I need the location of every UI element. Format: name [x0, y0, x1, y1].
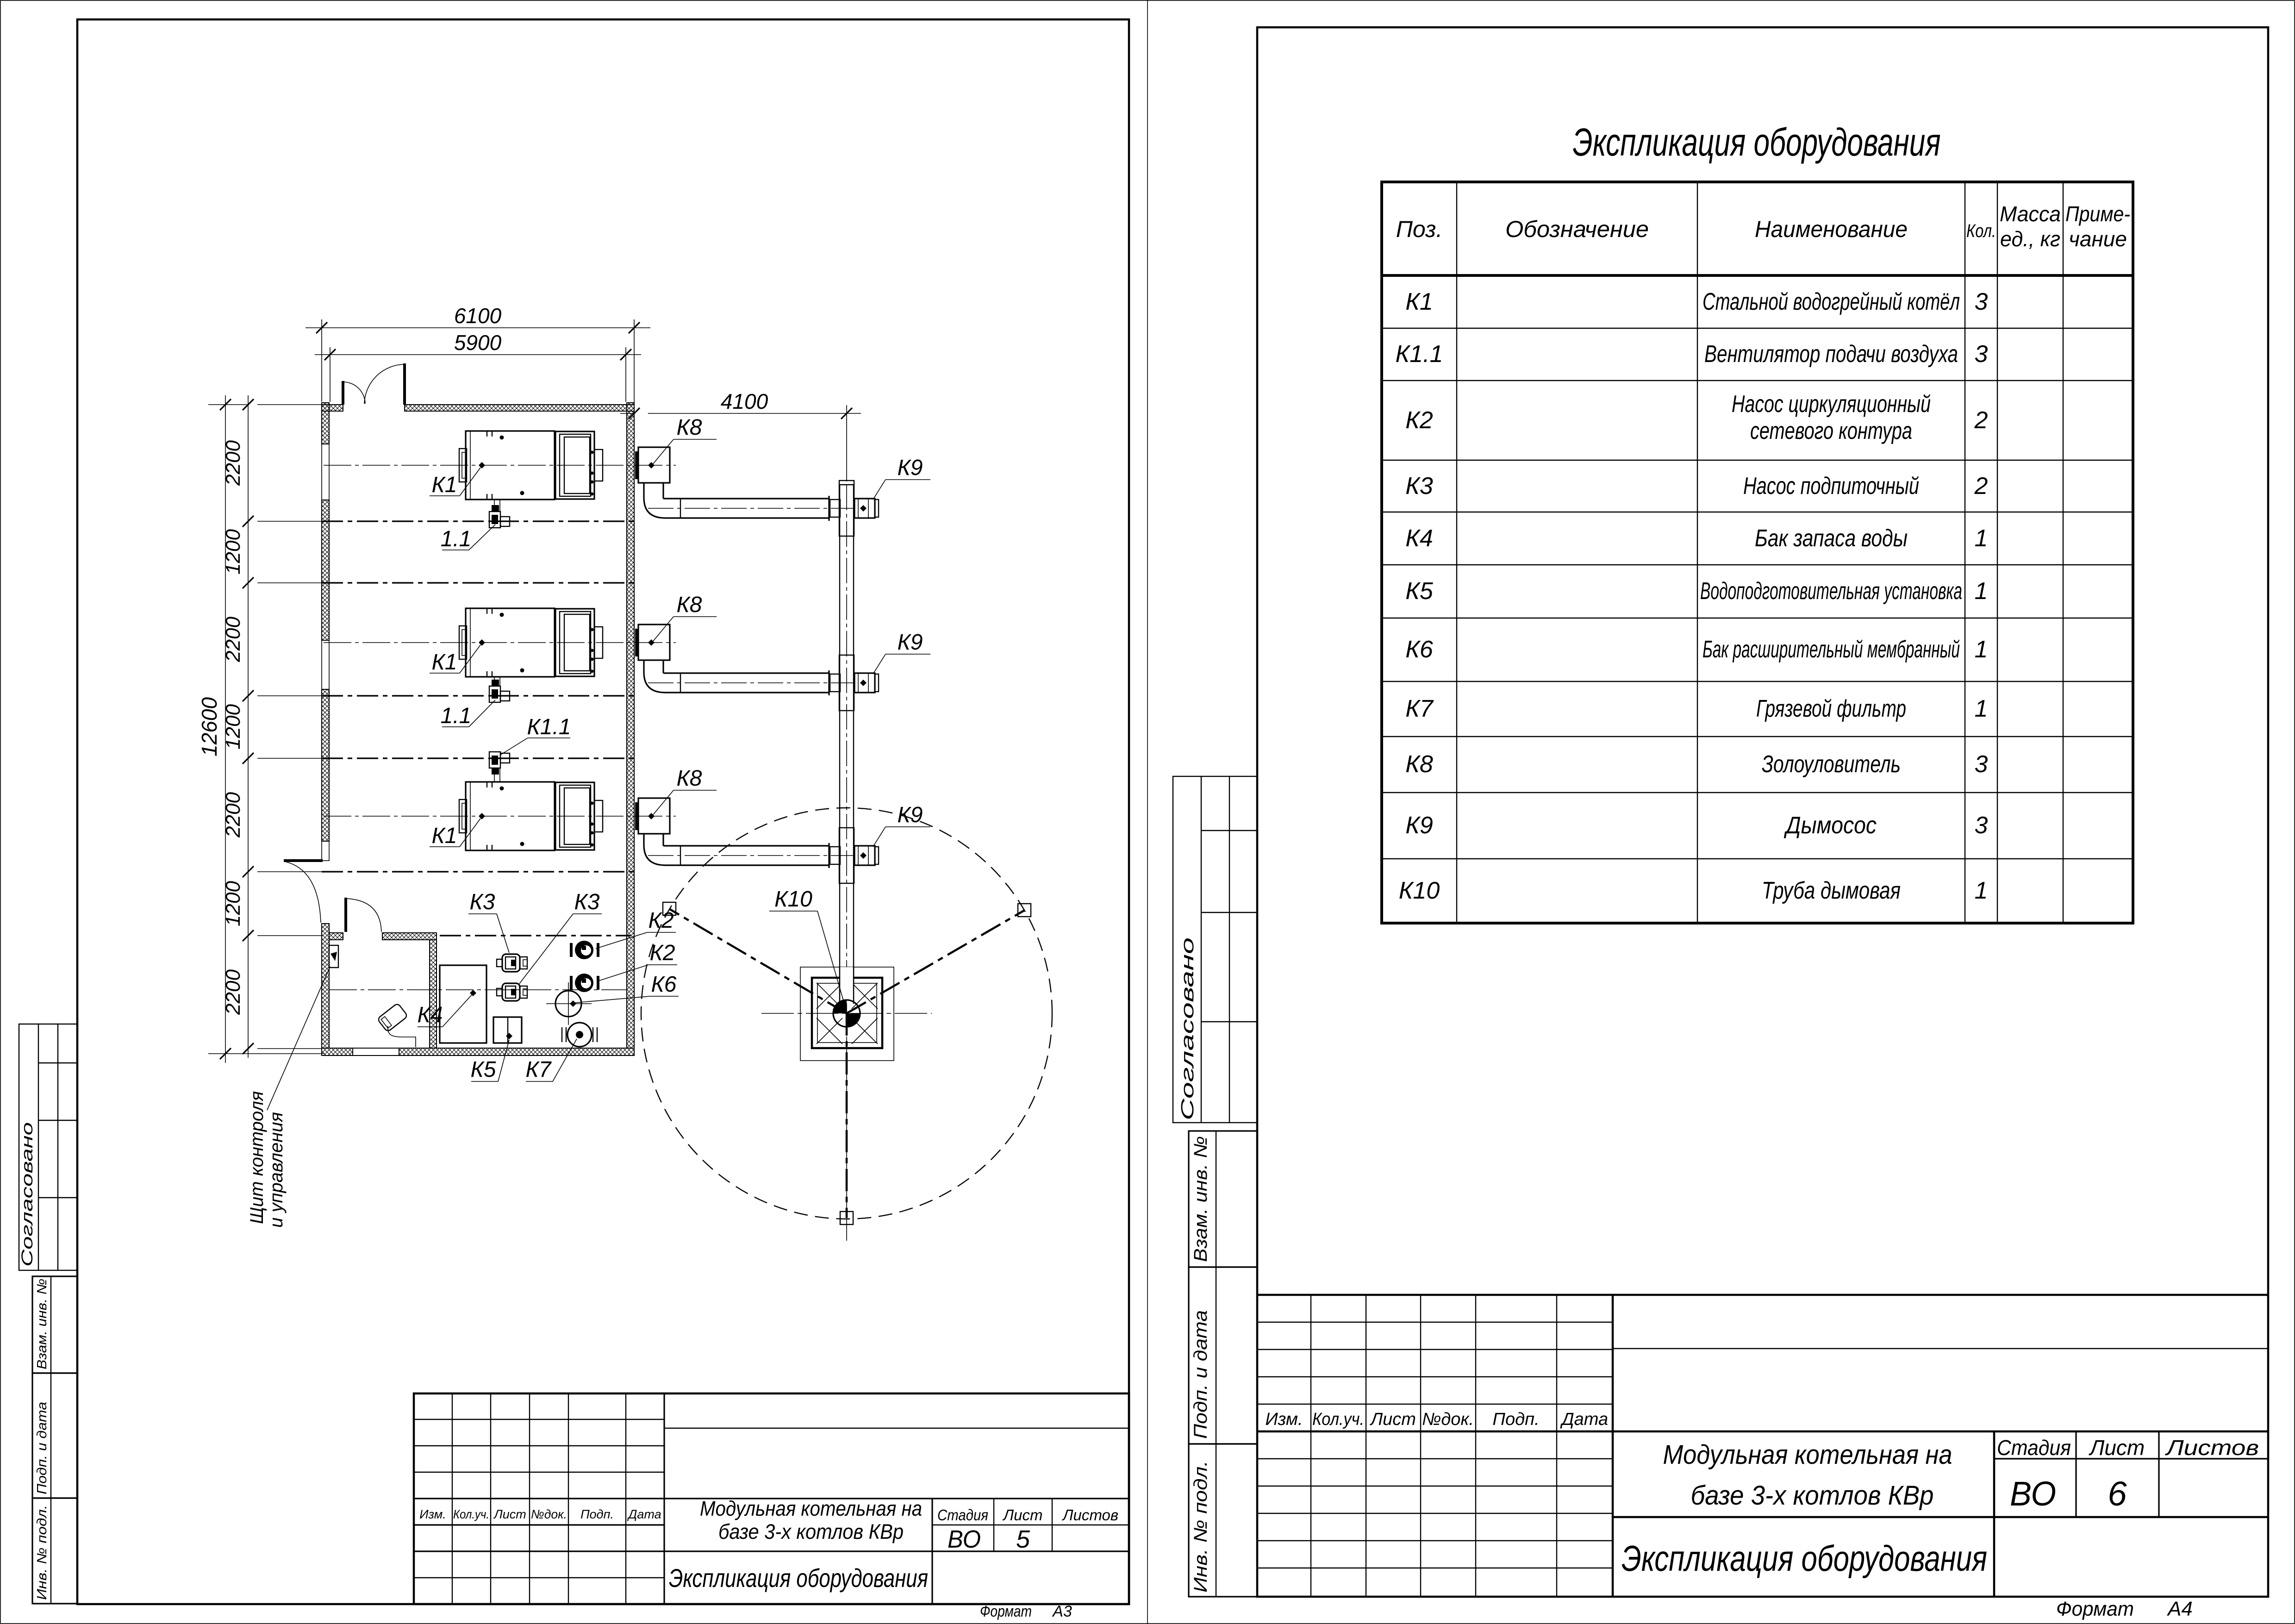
svg-text:Лист: Лист: [1369, 1410, 1416, 1429]
svg-text:3: 3: [1975, 288, 1988, 315]
svg-text:базе 3-х котлов КВр: базе 3-х котлов КВр: [718, 1520, 904, 1543]
svg-text:Взам. инв. №: Взам. инв. №: [1191, 1136, 1211, 1262]
svg-text:К2: К2: [650, 941, 675, 965]
svg-text:Наименование: Наименование: [1755, 216, 1908, 242]
svg-text:К8: К8: [677, 593, 702, 617]
svg-text:1.1: 1.1: [441, 527, 472, 551]
svg-text:чание: чание: [2069, 227, 2127, 251]
svg-text:К1: К1: [432, 650, 457, 675]
svg-text:К8: К8: [1405, 751, 1433, 778]
svg-text:№док.: №док.: [531, 1507, 567, 1521]
svg-text:К10: К10: [1399, 877, 1440, 904]
svg-text:Грязевой фильтр: Грязевой фильтр: [1756, 695, 1906, 722]
svg-text:К3: К3: [574, 890, 600, 914]
svg-text:5: 5: [1016, 1525, 1030, 1553]
svg-text:3: 3: [1975, 341, 1988, 368]
svg-text:К3: К3: [470, 890, 495, 914]
svg-text:Дата: Дата: [627, 1507, 661, 1521]
svg-text:Дата: Дата: [1560, 1410, 1608, 1429]
svg-text:К9: К9: [1405, 812, 1433, 839]
svg-text:Листов: Листов: [2164, 1436, 2259, 1460]
svg-text:К4: К4: [418, 1003, 443, 1027]
svg-text:Стадия: Стадия: [1997, 1436, 2071, 1460]
svg-text:К8: К8: [677, 415, 702, 440]
svg-text:К1.1: К1.1: [527, 715, 571, 739]
svg-text:3: 3: [1975, 751, 1988, 778]
svg-text:Бак расширительный мембранный: Бак расширительный мембранный: [1703, 636, 1960, 663]
svg-text:Насос циркуляционный: Насос циркуляционный: [1732, 391, 1931, 418]
svg-text:А3: А3: [1052, 1603, 1072, 1620]
svg-text:К1.1: К1.1: [1396, 341, 1443, 368]
svg-text:Подп.: Подп.: [1492, 1410, 1539, 1429]
svg-text:Кол.: Кол.: [1966, 221, 1996, 241]
svg-text:1.1: 1.1: [441, 704, 472, 728]
svg-text:К2: К2: [1405, 407, 1433, 434]
svg-text:Насос подпиточный: Насос подпиточный: [1743, 473, 1919, 500]
svg-text:К1: К1: [1405, 288, 1433, 315]
svg-text:Формат: Формат: [980, 1603, 1032, 1620]
svg-text:К7: К7: [1405, 695, 1434, 722]
svg-text:1: 1: [1975, 695, 1988, 722]
svg-text:1: 1: [1975, 877, 1988, 904]
svg-text:1: 1: [1975, 578, 1988, 605]
svg-text:ВО: ВО: [948, 1525, 981, 1553]
svg-text:Экспликация оборудования: Экспликация оборудования: [1621, 1538, 1987, 1579]
svg-text:Стадия: Стадия: [937, 1506, 988, 1524]
svg-text:3: 3: [1975, 812, 1988, 839]
svg-text:Подп.: Подп.: [580, 1507, 614, 1521]
svg-text:Поз.: Поз.: [1396, 216, 1443, 242]
svg-text:5900: 5900: [454, 331, 502, 355]
svg-text:К6: К6: [651, 972, 677, 997]
svg-text:К1: К1: [432, 473, 457, 497]
svg-text:Стальной водогрейный котёл: Стальной водогрейный котёл: [1703, 288, 1960, 315]
svg-text:Модульная котельная на: Модульная котельная на: [1663, 1440, 1952, 1470]
svg-text:Согласовано: Согласовано: [1178, 937, 1197, 1120]
svg-text:Лист: Лист: [2089, 1436, 2145, 1460]
svg-text:12600: 12600: [197, 697, 221, 756]
svg-text:Масса: Масса: [2000, 202, 2061, 226]
svg-text:6100: 6100: [454, 304, 502, 328]
svg-text:Приме-: Приме-: [2065, 202, 2130, 226]
svg-text:Экспликация оборудования: Экспликация оборудования: [1573, 120, 1941, 164]
svg-text:Согласовано: Согласовано: [19, 1122, 36, 1267]
svg-text:Инв. № подл.: Инв. № подл.: [35, 1505, 50, 1600]
svg-text:К2: К2: [649, 908, 674, 933]
svg-text:К4: К4: [1405, 525, 1433, 552]
svg-text:Обозначение: Обозначение: [1505, 216, 1649, 242]
svg-text:№док.: №док.: [1422, 1410, 1474, 1429]
svg-text:Инв. № подл.: Инв. № подл.: [1191, 1461, 1211, 1593]
svg-text:ВО: ВО: [2010, 1474, 2056, 1513]
svg-text:Экспликация оборудования: Экспликация оборудования: [669, 1563, 928, 1593]
svg-text:Щит контроля: Щит контроля: [247, 1091, 267, 1224]
svg-text:Изм.: Изм.: [1265, 1410, 1303, 1429]
svg-text:Взам. инв. №: Взам. инв. №: [35, 1279, 50, 1369]
svg-text:6: 6: [2108, 1474, 2127, 1513]
svg-text:сетевого контура: сетевого контура: [1750, 418, 1912, 444]
svg-text:К1: К1: [432, 824, 457, 848]
svg-text:К7: К7: [526, 1057, 552, 1082]
svg-text:Листов: Листов: [1062, 1506, 1118, 1524]
svg-text:ед., кг: ед., кг: [2000, 227, 2060, 251]
svg-text:4100: 4100: [721, 389, 768, 413]
svg-text:Дымосос: Дымосос: [1784, 812, 1877, 839]
svg-text:и управления: и управления: [266, 1112, 287, 1228]
svg-text:А4: А4: [2166, 1598, 2193, 1620]
svg-text:2: 2: [1974, 473, 1988, 500]
svg-text:К10: К10: [774, 887, 812, 912]
svg-text:Труба дымовая: Труба дымовая: [1762, 877, 1901, 904]
svg-text:1: 1: [1975, 525, 1988, 552]
svg-text:К3: К3: [1405, 473, 1433, 500]
svg-text:1: 1: [1975, 636, 1988, 663]
svg-text:Водоподготовительная установка: Водоподготовительная установка: [1700, 578, 1962, 605]
svg-text:Золоуловитель: Золоуловитель: [1762, 751, 1901, 778]
svg-text:Вентилятор подачи воздуха: Вентилятор подачи воздуха: [1704, 341, 1958, 368]
svg-text:Бак запаса воды: Бак запаса воды: [1755, 525, 1908, 552]
svg-text:Лист: Лист: [1003, 1506, 1043, 1524]
svg-text:К5: К5: [1405, 578, 1434, 605]
svg-text:Кол.уч.: Кол.уч.: [453, 1507, 489, 1521]
svg-text:Модульная котельная на: Модульная котельная на: [700, 1497, 922, 1520]
svg-text:Кол.уч.: Кол.уч.: [1312, 1410, 1364, 1429]
svg-text:К9: К9: [898, 456, 923, 480]
svg-text:базе 3-х котлов КВр: базе 3-х котлов КВр: [1691, 1480, 1934, 1511]
svg-text:К5: К5: [471, 1057, 496, 1082]
svg-text:Формат: Формат: [2056, 1598, 2134, 1620]
svg-text:Лист: Лист: [493, 1507, 526, 1521]
svg-text:К8: К8: [677, 766, 702, 791]
svg-text:К9: К9: [898, 630, 923, 655]
svg-text:2: 2: [1974, 407, 1988, 434]
svg-text:Подп. и дата: Подп. и дата: [1191, 1310, 1211, 1439]
svg-text:К6: К6: [1405, 636, 1433, 663]
svg-text:Подп. и дата: Подп. и дата: [35, 1402, 50, 1494]
svg-text:Изм.: Изм.: [419, 1507, 446, 1521]
